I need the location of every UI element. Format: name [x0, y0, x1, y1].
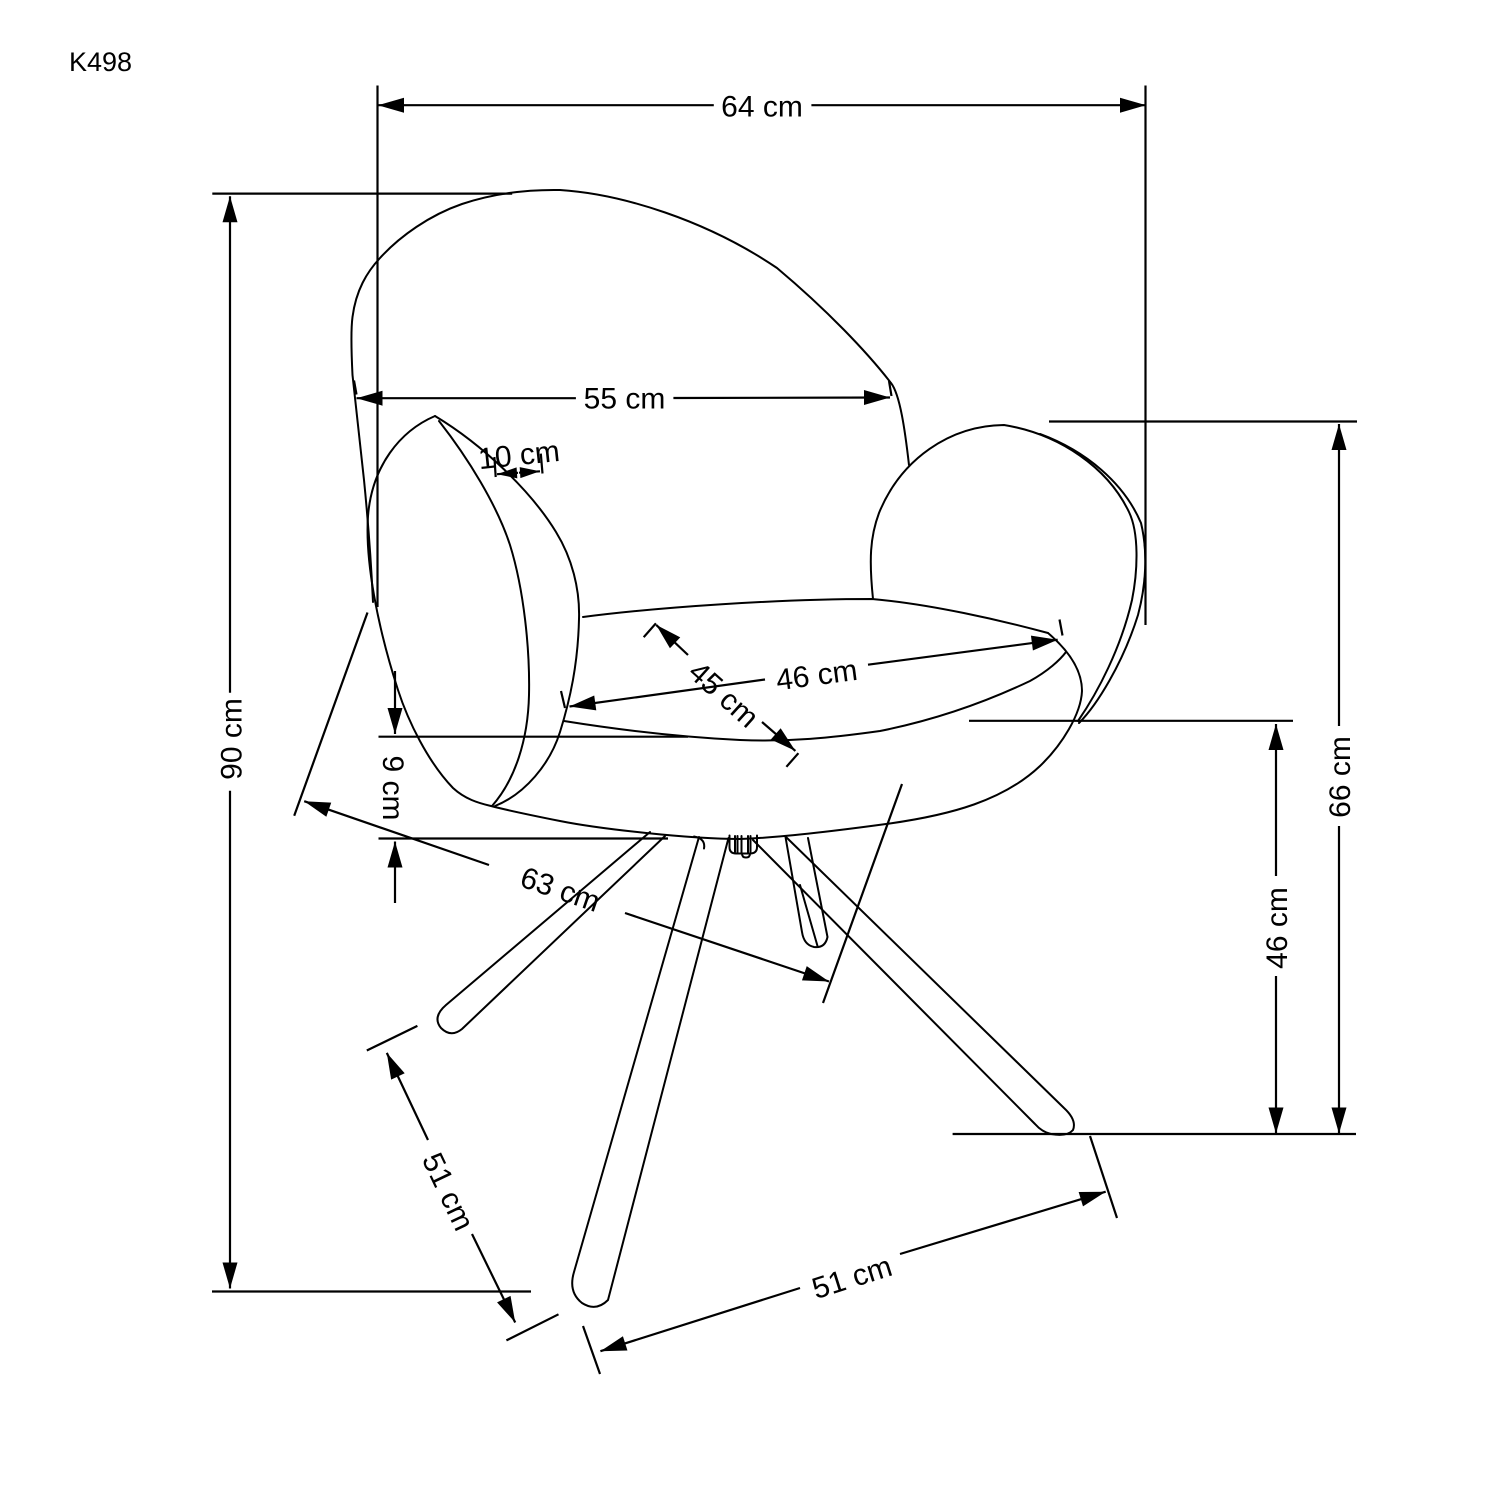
svg-text:90 cm: 90 cm [216, 698, 249, 780]
svg-text:66 cm: 66 cm [1324, 736, 1357, 818]
svg-text:46 cm: 46 cm [1261, 887, 1294, 969]
svg-text:9 cm: 9 cm [376, 755, 409, 820]
svg-text:55 cm: 55 cm [584, 382, 666, 415]
svg-text:64 cm: 64 cm [721, 90, 803, 123]
svg-text:K498: K498 [69, 47, 132, 77]
